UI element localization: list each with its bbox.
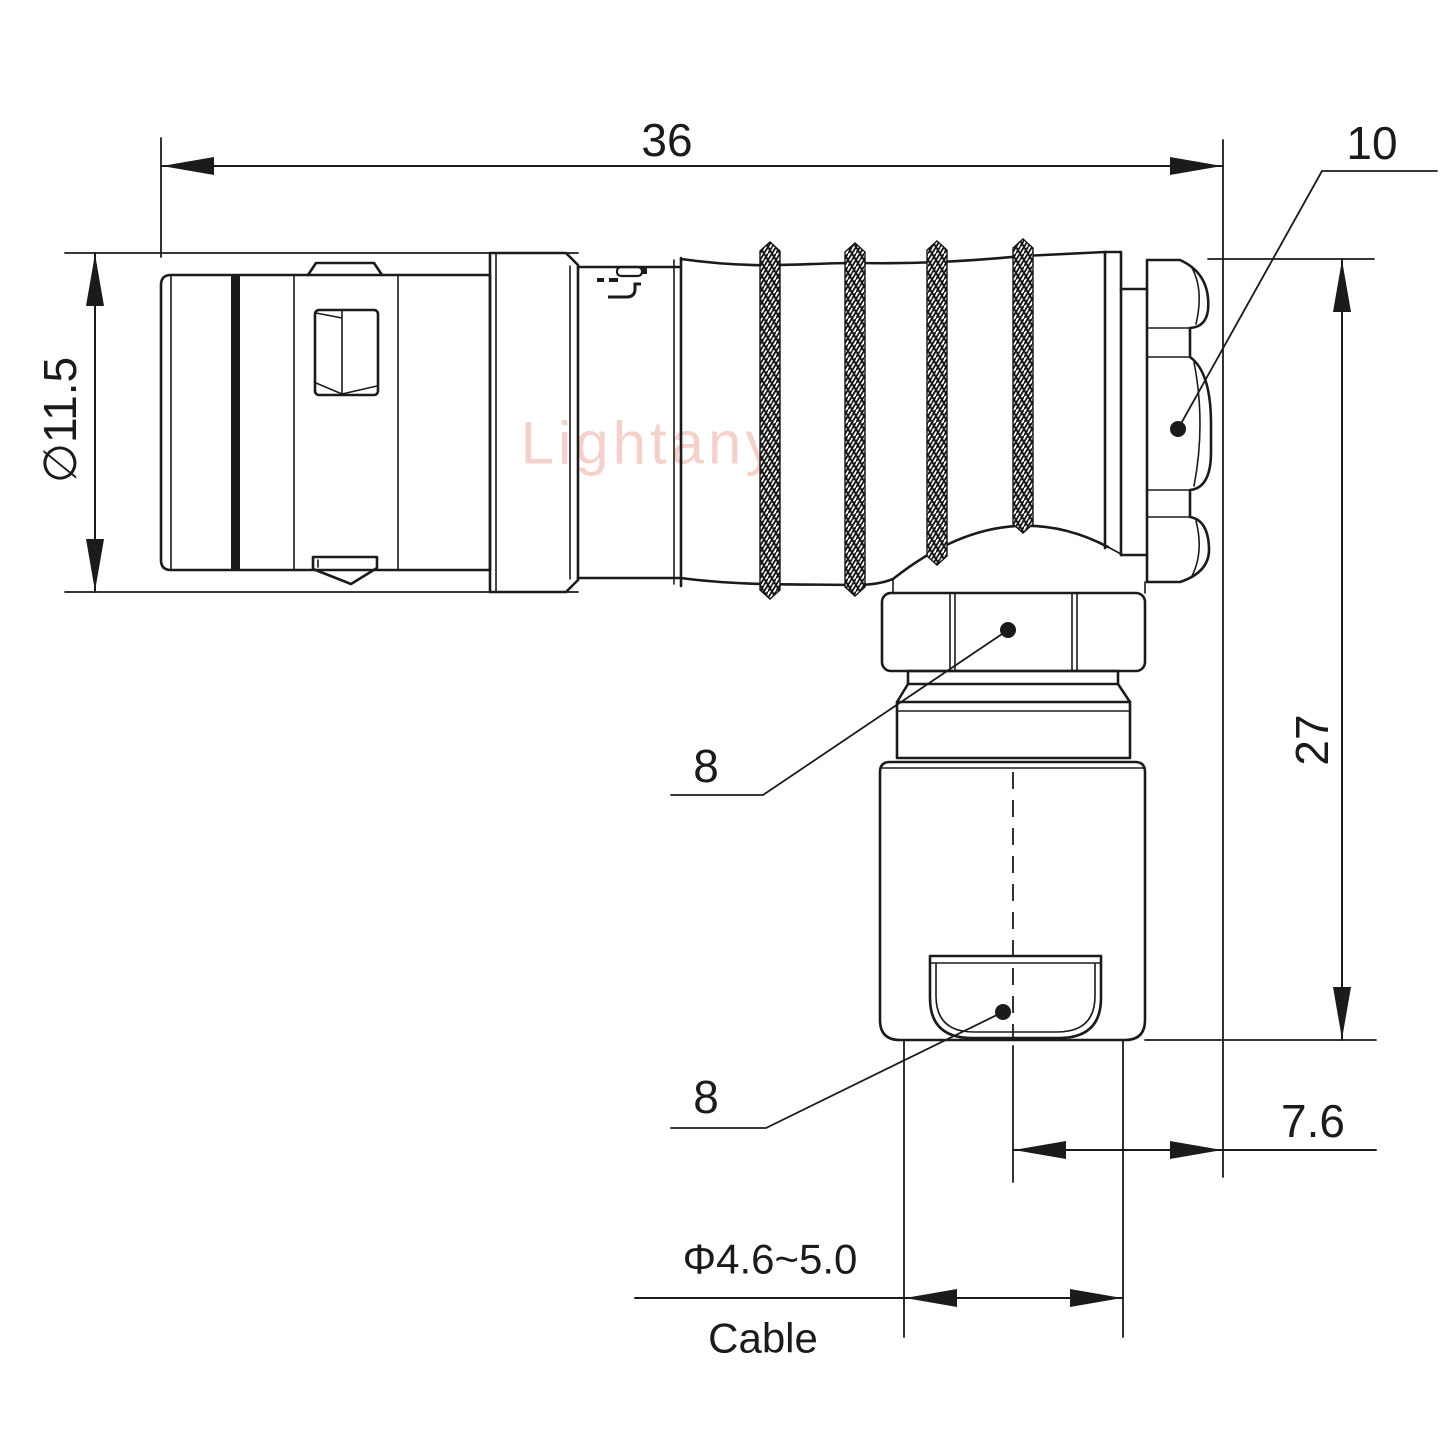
technical-drawing: Lightany [0, 0, 1440, 1440]
dim-overall-height: 27 [1145, 259, 1376, 1040]
elbow-saddle [893, 526, 1108, 579]
drawing-canvas: Lightany [0, 0, 1440, 1440]
cable-bushing [930, 956, 1101, 1038]
logo-engraving [597, 267, 647, 297]
label-rear-nut-text: 10 [1346, 117, 1397, 169]
latch-window [315, 310, 378, 395]
dim-overall-length-text: 36 [641, 114, 692, 166]
dim-axis-offset: 7.6 [1013, 1046, 1376, 1182]
knurl-band [760, 242, 780, 599]
knurl-band [927, 241, 947, 565]
watermark-text: Lightany [521, 410, 780, 477]
dim-shell-diameter-text: ∅11.5 [34, 357, 86, 483]
barrel-neck [897, 671, 1130, 758]
label-cable-hex: 8 [671, 1004, 1011, 1128]
dim-overall-height-text: 27 [1286, 714, 1338, 765]
label-coupling-hex-text: 8 [693, 740, 719, 792]
knurl-band [845, 243, 865, 596]
rear-flange [1105, 252, 1147, 555]
front-shell [161, 263, 490, 584]
shell-black-band [231, 275, 240, 570]
dim-axis-offset-text: 7.6 [1281, 1095, 1345, 1147]
dim-overall-length: 36 [161, 114, 1223, 1177]
cable-word-text: Cable [708, 1315, 818, 1362]
key-bump [308, 263, 382, 275]
label-cable-hex-text: 8 [693, 1071, 719, 1123]
dim-cable-range-text: Φ4.6~5.0 [683, 1236, 858, 1283]
label-coupling-hex: 8 [671, 622, 1016, 795]
connector-vertical-barrel [880, 593, 1145, 1046]
knurl-band [1013, 239, 1033, 533]
cable-sleeve-body [880, 762, 1145, 1046]
